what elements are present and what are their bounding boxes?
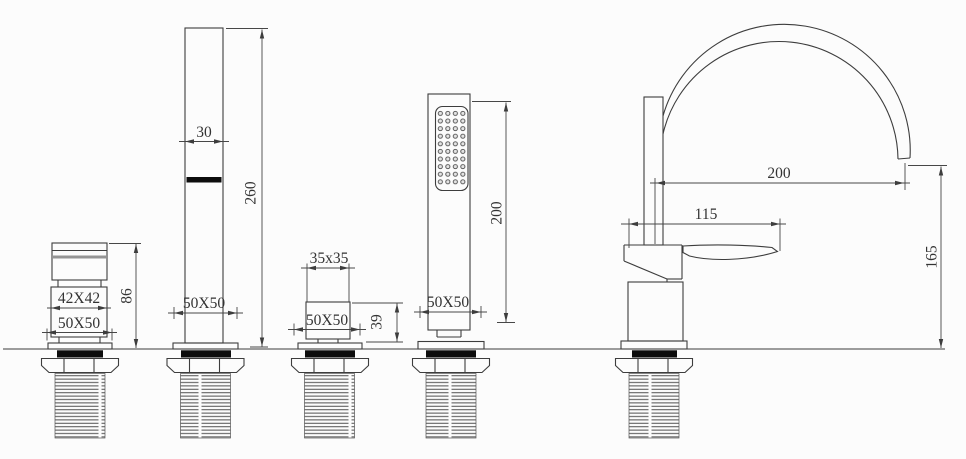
dim-side-faucet-depth: 115: [621, 206, 786, 251]
spout-mount-hardware: [167, 350, 244, 438]
dim-label-small-valve-height: 39: [369, 314, 386, 330]
dim-label-hand-shower-base: 50X50: [427, 294, 469, 311]
hand-shower-mount-hardware: [413, 350, 490, 438]
left-valve-mount-hardware: [42, 350, 119, 438]
spout-view: 30 50X50 260: [167, 28, 268, 438]
hand-shower-view: 50X50 200: [413, 94, 516, 438]
dim-label-left-valve-base: 50X50: [58, 315, 100, 332]
dim-label-spout-height: 260: [243, 181, 260, 205]
side-faucet-mount-hardware: [616, 350, 693, 438]
side-faucet-spout: [644, 24, 910, 245]
side-faucet-body: [621, 245, 778, 349]
dim-side-faucet-outlet-height: 165: [908, 166, 947, 349]
dim-small-valve-base: 50X50: [288, 312, 366, 336]
dim-label-spout-base: 50X50: [183, 295, 225, 312]
dim-label-side-faucet-reach: 200: [767, 165, 791, 182]
lever-handle: [683, 245, 778, 260]
dim-small-valve-head: 35x35: [301, 250, 355, 302]
dim-label-spout-width: 30: [196, 124, 212, 141]
left-valve-view: 42X42 50X50 86: [42, 243, 142, 438]
side-faucet-view: 200 115 165: [616, 24, 948, 438]
dim-label-side-faucet-outlet-height: 165: [924, 245, 941, 269]
dim-label-small-valve-head: 35x35: [310, 250, 349, 267]
small-valve-mount-hardware: [292, 350, 369, 438]
drawing-svg: 42X42 50X50 86: [0, 0, 966, 459]
dim-spout-base: 50X50: [168, 295, 243, 319]
dim-small-valve-height: 39: [352, 303, 403, 342]
small-valve-view: 35x35 50X50 39: [288, 250, 403, 438]
dim-hand-shower-base: 50X50: [414, 294, 487, 318]
dim-label-left-valve-height: 86: [119, 288, 136, 304]
dim-label-hand-shower-length: 200: [489, 201, 506, 225]
dim-label-left-valve-body: 42X42: [58, 290, 100, 307]
technical-drawing: 42X42 50X50 86: [0, 0, 966, 459]
dim-label-small-valve-base: 50X50: [306, 312, 348, 329]
dim-spout-width: 30: [179, 124, 229, 144]
dim-spout-height: 260: [226, 29, 268, 348]
dim-hand-shower-length: 200: [472, 102, 515, 323]
spray-nozzle-grid: [437, 110, 467, 186]
dim-label-side-faucet-depth: 115: [695, 206, 718, 223]
dim-left-valve-body: 42X42: [47, 290, 111, 310]
